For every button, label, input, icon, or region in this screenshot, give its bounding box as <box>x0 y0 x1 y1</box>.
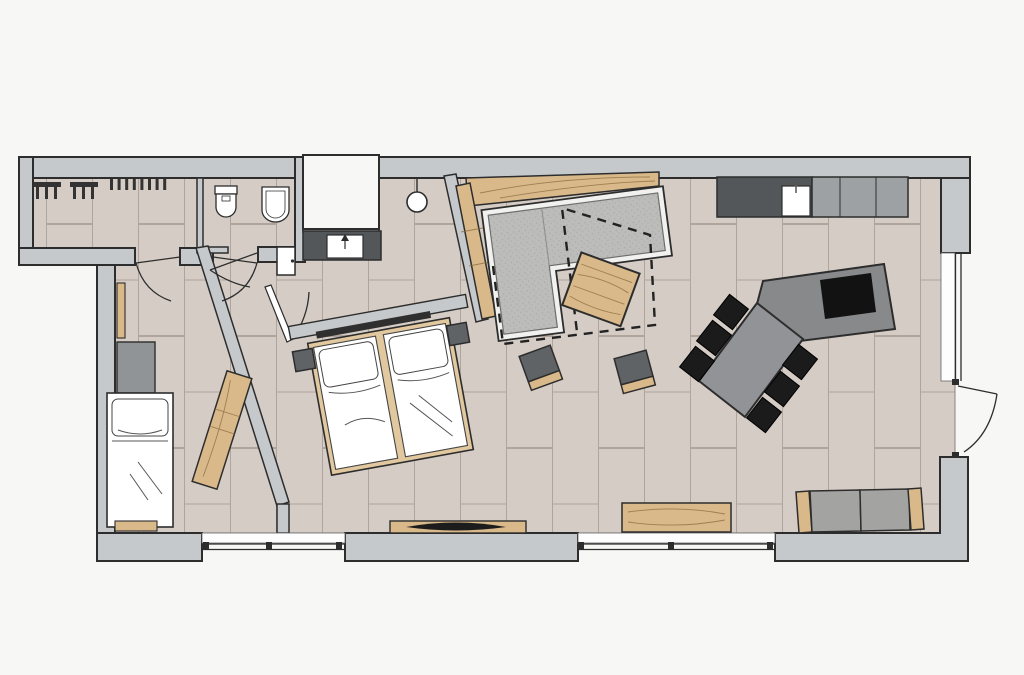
floor-plan-canvas <box>0 0 1024 675</box>
wall-bottom-mid <box>345 533 578 561</box>
wall-radiator <box>117 283 125 338</box>
wall-hook <box>133 179 136 190</box>
wall-top-main <box>377 157 970 178</box>
coat-hook <box>36 187 39 199</box>
floor-plan-page <box>0 0 1024 675</box>
wall-hook <box>110 179 113 190</box>
kitchen-appliance-block <box>812 177 908 217</box>
door-jamb <box>952 379 959 385</box>
window-mullion <box>203 542 209 550</box>
wall-top-left-block <box>19 157 305 178</box>
wall-hall-bottom-a <box>19 248 135 265</box>
nightstand-right <box>446 322 469 345</box>
coat-hook <box>73 187 76 199</box>
window-east-recess <box>941 253 955 381</box>
wall-angled-hall-tip <box>277 504 289 533</box>
kitchen <box>717 177 908 217</box>
door-jamb <box>952 452 959 458</box>
wall-hook <box>125 179 128 190</box>
wood-sideboard <box>622 503 731 532</box>
window-right-glass <box>578 544 775 550</box>
coat-rack-bracket <box>70 182 98 187</box>
wall-hook <box>140 179 143 190</box>
bench-cushion <box>810 490 861 532</box>
wall-hook <box>148 179 151 190</box>
coat-hook <box>91 187 94 199</box>
toilet-tank <box>215 186 237 194</box>
wall-bathroom-left <box>197 178 203 253</box>
wardrobe-cabinet <box>117 342 155 393</box>
window-mullion <box>578 542 584 550</box>
under-bed-shelf <box>115 521 157 531</box>
balcony-door-arc <box>964 394 997 452</box>
coat-rack-bracket <box>33 182 61 187</box>
bench-cushion <box>860 489 910 531</box>
island-cooktop <box>820 273 876 319</box>
window-east-glass <box>956 253 962 381</box>
wall-hook <box>163 179 166 190</box>
door-handle <box>291 259 294 262</box>
wall-hook <box>156 179 159 190</box>
coat-hook <box>45 187 48 199</box>
coat-hook <box>82 187 85 199</box>
wall-top-right-block <box>941 178 970 253</box>
wall-hook <box>118 179 121 190</box>
toilet-flush <box>222 196 230 201</box>
exterior-niche <box>303 155 379 229</box>
nightstand-left <box>292 348 315 371</box>
bench-with-armrests <box>796 488 924 533</box>
bench-armrest-right <box>908 488 924 530</box>
window-mullion <box>767 542 773 550</box>
wall-bottom-left-slab <box>97 533 202 561</box>
window-left-recess <box>202 533 345 543</box>
window-mullion <box>266 542 272 550</box>
window-mullion <box>668 542 674 550</box>
pendant-lamp <box>407 192 427 212</box>
balcony-door-leaf <box>958 386 997 394</box>
window-right-recess <box>578 533 775 543</box>
window-left-glass <box>202 544 345 550</box>
window-mullion <box>336 542 342 550</box>
coat-hook <box>54 187 57 199</box>
